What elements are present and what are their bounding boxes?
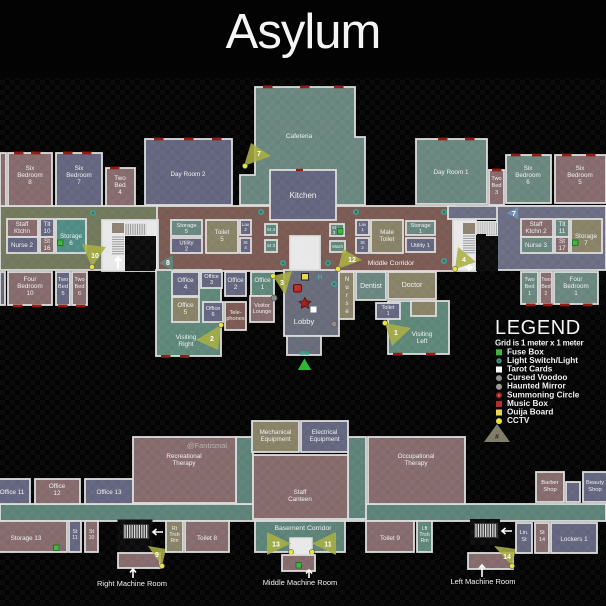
svg-text:Asylum: Asylum	[226, 5, 381, 59]
